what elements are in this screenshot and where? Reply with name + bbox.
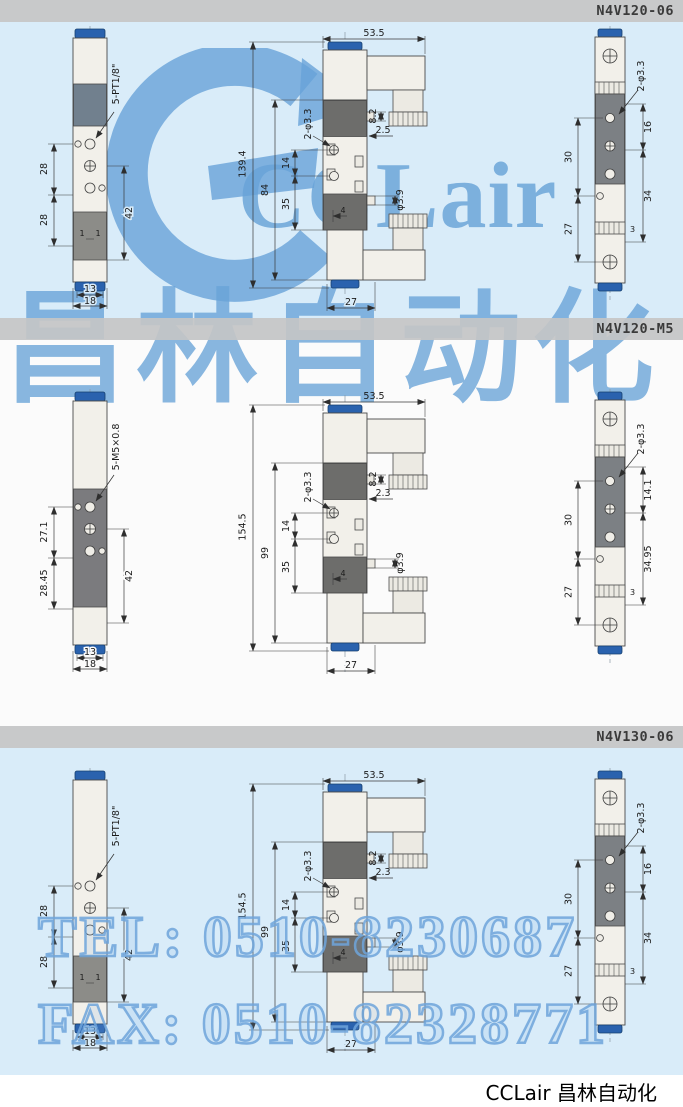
dim-pitch: 14 — [281, 520, 292, 532]
top-cap — [598, 29, 622, 37]
tick-right: 1 — [95, 229, 100, 238]
width-outer: 18 — [84, 1038, 96, 1049]
band-top — [324, 101, 367, 137]
dim-notch: 3 — [630, 588, 635, 597]
thread-label: 5-PT1/8" — [111, 64, 122, 105]
dim-left-lower: 27 — [564, 964, 575, 976]
left-view-drawing: 27.1 28.45 42 5-M5×0.8 13 18 — [2, 389, 152, 677]
connector-arm-bottom — [363, 992, 425, 1022]
top-cap — [598, 392, 622, 400]
dim-right: 42 — [124, 570, 135, 582]
connector-knurl-top — [389, 112, 427, 126]
knurl-top — [595, 445, 625, 457]
dim-center: 4 — [340, 948, 345, 957]
knurl-bottom — [595, 585, 625, 597]
dim-notch: 3 — [630, 967, 635, 976]
dim-center: 4 — [340, 206, 345, 215]
port-band — [74, 956, 107, 1002]
knurl-bottom — [595, 964, 625, 976]
dim-step: 8.2 — [368, 108, 379, 123]
dim-right-lower: 34 — [643, 931, 654, 943]
dim-offset: 2.5 — [375, 125, 390, 136]
band-top — [324, 842, 367, 878]
section-n4v120-06: 28 28 42 5-PT1/8" 1 1 13 18 — [0, 22, 683, 318]
holes-label: 2-φ3.3 — [303, 109, 314, 140]
dim-step: 8.2 — [368, 471, 379, 486]
thread-label: 5-M5×0.8 — [111, 424, 122, 471]
dim-right: 42 — [124, 207, 135, 219]
tick-left: 1 — [79, 973, 84, 982]
dim-notch: 3 — [630, 225, 635, 234]
dim-left-lower: 27 — [564, 223, 575, 235]
dim-offset: 2.3 — [375, 867, 390, 878]
catalog-page: N4V120-06 28 — [0, 0, 683, 1107]
dim-height-total: 154.5 — [238, 513, 249, 540]
width-inner: 13 — [84, 647, 96, 658]
dim-center: 4 — [340, 569, 345, 578]
bottom-cap — [331, 1022, 359, 1030]
dim-width-top: 53.5 — [363, 28, 384, 39]
connector-knurl-top — [389, 854, 427, 868]
port-dia: φ3.9 — [395, 931, 406, 952]
connector-arm-top — [367, 798, 425, 832]
neck — [323, 50, 367, 100]
port-dia: φ3.9 — [395, 189, 406, 210]
connector-knurl-bottom — [389, 956, 427, 970]
neck — [323, 792, 367, 842]
dim-b: 28 — [39, 955, 50, 967]
holes-label: 2-φ3.3 — [636, 424, 647, 455]
dim-width-top: 53.5 — [363, 391, 384, 402]
bottom-cap — [598, 283, 622, 291]
section-n4v120-m5: 27.1 28.45 42 5-M5×0.8 13 18 — [0, 340, 683, 726]
connector-arm-bottom — [363, 250, 425, 280]
thread-label: 5-PT1/8" — [111, 805, 122, 846]
dim-height-total: 139.4 — [238, 150, 249, 177]
connector-arm-bottom — [363, 613, 425, 643]
dim-b: 28 — [39, 214, 50, 226]
top-cap — [75, 392, 105, 401]
dim-right-lower: 34 — [643, 190, 654, 202]
dim-a: 28 — [39, 904, 50, 916]
dim-a: 28 — [39, 163, 50, 175]
dim-height-body: 99 — [260, 925, 271, 937]
top-cap — [328, 42, 362, 50]
dim-lower: 35 — [281, 939, 292, 951]
bottom-cap — [331, 643, 359, 651]
front-view-drawing: 53.5 154.5 99 14 35 2-φ3.3 8.2 2.3 φ3.9 … — [235, 387, 445, 679]
top-cap — [75, 29, 105, 38]
body-bottom — [327, 230, 363, 280]
connector-knurl-bottom — [389, 214, 427, 228]
dim-width-top: 53.5 — [363, 770, 384, 781]
front-view-drawing: 53.5 139.4 84 14 35 2-φ3.3 8.2 2.5 φ3.9 … — [235, 24, 445, 316]
holes-label: 2-φ3.3 — [636, 61, 647, 92]
bottom-cap — [598, 1025, 622, 1033]
dim-step: 8.2 — [368, 850, 379, 865]
dim-right-upper: 16 — [643, 862, 654, 874]
dim-height-body: 84 — [260, 184, 271, 196]
model-bar-3: N4V130-06 — [0, 726, 683, 748]
width-inner: 13 — [84, 284, 96, 295]
holes-label: 2-φ3.3 — [303, 472, 314, 503]
model-bar-2: N4V120-M5 — [0, 318, 683, 340]
band-top — [324, 464, 367, 500]
left-view-drawing: 28 28 42 5-PT1/8" 1 1 13 18 — [2, 768, 152, 1056]
top-cap — [328, 405, 362, 413]
dim-offset: 2.3 — [375, 488, 390, 499]
body-bottom — [327, 972, 363, 1022]
model-label: N4V120-M5 — [596, 321, 674, 337]
dim-height-body: 99 — [260, 547, 271, 559]
width-inner: 13 — [84, 1026, 96, 1037]
dim-left-upper: 30 — [564, 514, 575, 526]
holes-label: 2-φ3.3 — [636, 802, 647, 833]
dim-right-upper: 14.1 — [643, 479, 654, 500]
dim-a: 27.1 — [39, 521, 50, 542]
front-view-drawing: 53.5 154.5 99 14 35 2-φ3.3 8.2 2.3 φ3.9 … — [235, 766, 445, 1058]
section-n4v130-06: 28 28 42 5-PT1/8" 1 1 13 18 — [0, 748, 683, 1075]
knurl-top — [595, 824, 625, 836]
width-outer: 18 — [84, 659, 96, 670]
knurl-top — [595, 82, 625, 94]
dim-right: 42 — [124, 948, 135, 960]
bottom-cap — [331, 280, 359, 288]
connector-arm-top — [367, 419, 425, 453]
dim-lower: 35 — [281, 198, 292, 210]
footer-bar: CCLair 昌林自动化 — [0, 1075, 683, 1107]
neck — [323, 413, 367, 463]
footer-brand: CCLair 昌林自动化 — [486, 1077, 657, 1106]
side-view-drawing: 2-φ3.3 30 27 16 34 3 — [548, 768, 683, 1056]
knurl-bottom — [595, 222, 625, 234]
top-cap — [598, 771, 622, 779]
model-label: N4V120-06 — [596, 3, 674, 19]
dim-width-bottom: 27 — [345, 1039, 357, 1050]
dim-pitch: 14 — [281, 898, 292, 910]
connector-knurl-top — [389, 475, 427, 489]
dim-b: 28.45 — [39, 569, 50, 596]
side-view-drawing: 2-φ3.3 30 27 14.1 34.95 3 — [548, 389, 683, 677]
solenoid-band — [74, 84, 107, 126]
width-outer: 18 — [84, 296, 96, 307]
dim-pitch: 14 — [281, 157, 292, 169]
dim-left-lower: 27 — [564, 586, 575, 598]
dim-width-bottom: 27 — [345, 660, 357, 671]
top-cap — [75, 771, 105, 780]
port-dia: φ3.9 — [395, 552, 406, 573]
dim-width-bottom: 27 — [345, 297, 357, 308]
connector-knurl-bottom — [389, 577, 427, 591]
tick-left: 1 — [79, 229, 84, 238]
dim-right-lower: 34.95 — [643, 545, 654, 572]
dim-left-upper: 30 — [564, 892, 575, 904]
top-cap — [328, 784, 362, 792]
dim-right-upper: 16 — [643, 121, 654, 133]
holes-label: 2-φ3.3 — [303, 850, 314, 881]
left-view-drawing: 28 28 42 5-PT1/8" 1 1 13 18 — [2, 26, 152, 314]
bottom-cap — [598, 646, 622, 654]
dim-left-upper: 30 — [564, 151, 575, 163]
dim-height-total: 154.5 — [238, 892, 249, 919]
side-view-drawing: 2-φ3.3 30 27 16 34 3 — [548, 26, 683, 314]
connector-arm-top — [367, 56, 425, 90]
model-bar-1: N4V120-06 — [0, 0, 683, 22]
dim-lower: 35 — [281, 561, 292, 573]
model-label: N4V130-06 — [596, 729, 674, 745]
tick-right: 1 — [95, 973, 100, 982]
port-band — [74, 212, 107, 260]
body-bottom — [327, 593, 363, 643]
